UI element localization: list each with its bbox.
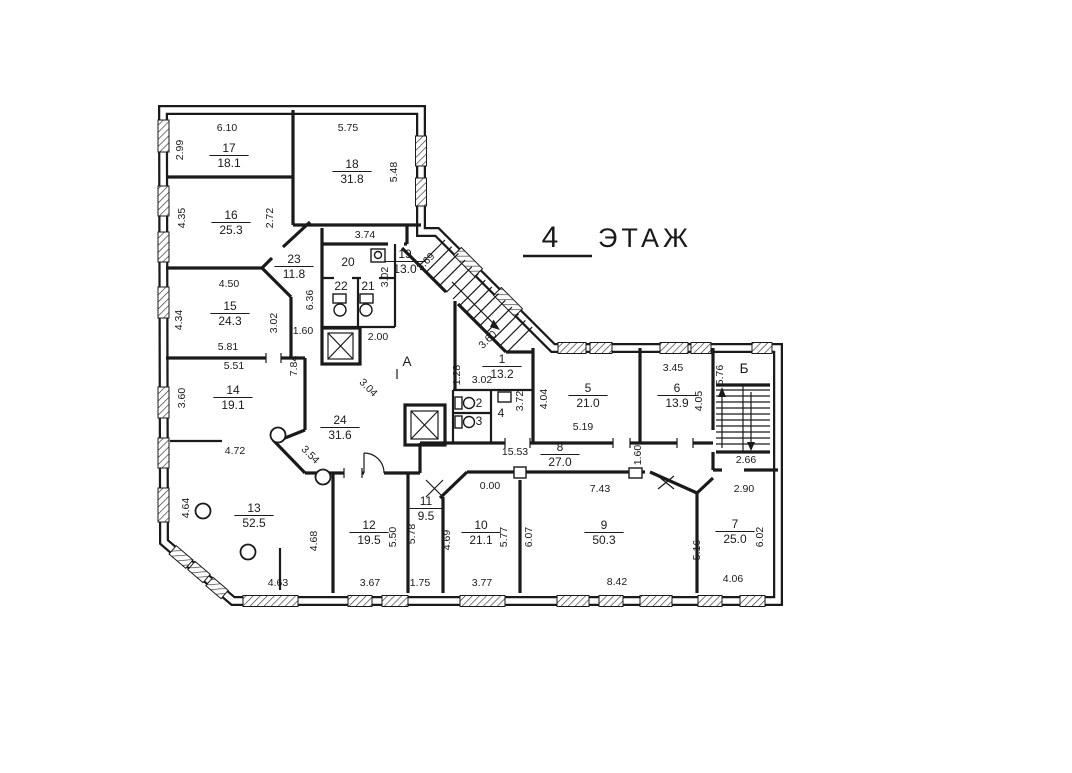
dimension-label: 0.00 <box>480 480 501 492</box>
room-label: 21.1 <box>469 533 493 547</box>
dimension-label: 1.60 <box>293 325 314 337</box>
room-label: 25.0 <box>723 532 747 546</box>
dimension-label: 4.72 <box>225 445 246 457</box>
room-label: 11 <box>420 494 433 508</box>
dimension-label: 2.00 <box>368 331 389 343</box>
room-label: 27.0 <box>548 455 572 469</box>
room-label: 11.8 <box>283 267 306 281</box>
room-label: 3 <box>476 414 483 428</box>
elevator-shaft-1 <box>322 328 360 364</box>
room-label: 15 <box>223 299 237 313</box>
dimension-label: 6.02 <box>754 527 766 548</box>
dimension-label: 3.74 <box>355 229 376 241</box>
room-label: 8 <box>557 440 564 454</box>
dimension-label: 3.54 <box>299 443 322 466</box>
dimension-label: 3.67 <box>360 577 381 589</box>
room-label: 6 <box>674 381 681 395</box>
dimension-label: 2.72 <box>264 208 276 229</box>
room-label: 52.5 <box>242 516 266 530</box>
room-label: 24 <box>333 413 347 427</box>
dimension-label: 5.78 <box>406 524 418 545</box>
dimension-label: 3.60 <box>176 388 188 409</box>
room-label: 22 <box>334 279 348 293</box>
room-label: 18 <box>345 157 359 171</box>
stairs-b <box>716 385 770 452</box>
room-label: 7 <box>732 517 739 531</box>
room-label: Б <box>740 361 749 376</box>
room-label: 21 <box>361 279 375 293</box>
dimension-label: 7.84 <box>288 356 300 377</box>
dimension-label: 6.07 <box>523 527 535 548</box>
floor-plan-page: 1718.11625.31831.81524.31419.12311.81913… <box>0 0 1072 768</box>
room-label: 5 <box>585 381 592 395</box>
dimension-label: 6.36 <box>304 290 316 311</box>
dimension-label: 4.35 <box>176 208 188 229</box>
dimension-label: 4.68 <box>308 531 320 552</box>
dimension-label: 4.69 <box>441 530 453 551</box>
dimension-label: 3.72 <box>514 391 526 412</box>
dimension-label: 4.50 <box>219 278 240 290</box>
room-label: 1 <box>499 352 506 366</box>
room-label: А <box>402 354 411 369</box>
dimension-label: 3.02 <box>472 374 493 386</box>
floor-title: 4 ЭТАЖ <box>523 221 692 256</box>
room-label: 23 <box>287 252 301 266</box>
dimension-label: 5.50 <box>387 527 399 548</box>
dimension-label: 2.99 <box>174 140 186 161</box>
dimension-label: 4.05 <box>693 391 705 412</box>
room-label: 9.5 <box>418 509 435 523</box>
room-label: 25.3 <box>219 223 243 237</box>
room-label: 16 <box>224 208 238 222</box>
dimension-label: 1.28 <box>451 365 463 386</box>
room-label: 4 <box>498 406 505 420</box>
room-label: 13.9 <box>665 396 689 410</box>
floor-title-number: 4 <box>542 221 559 254</box>
dimension-label: 2.66 <box>736 454 757 466</box>
dimension-label: 3.45 <box>663 362 684 374</box>
dimension-label: 3.02 <box>268 313 280 334</box>
dimension-label: 1.75 <box>410 577 431 589</box>
floor-plan-drawing: 1718.11625.31831.81524.31419.12311.81913… <box>0 0 1072 768</box>
dimension-label: 4.63 <box>268 577 289 589</box>
dimension-label: 3.69 <box>414 250 437 273</box>
dimension-label: 5.75 <box>338 122 359 134</box>
dimension-label: 3.04 <box>357 376 380 399</box>
dimension-label: 4.34 <box>173 310 185 331</box>
dimension-label: 5.48 <box>388 162 400 183</box>
dimension-label: 5.76 <box>714 365 726 386</box>
dimension-label: 3.02 <box>379 267 391 288</box>
room-label: 18.1 <box>217 156 241 170</box>
room-label: 2 <box>476 396 483 410</box>
dimension-label: 5.19 <box>573 421 594 433</box>
floor-title-word: ЭТАЖ <box>598 223 692 253</box>
dimension-label: 5.51 <box>224 360 245 372</box>
room-label: 31.6 <box>328 428 352 442</box>
dimension-label: 3.77 <box>472 577 493 589</box>
dimension-label: 5.77 <box>498 527 510 548</box>
room-label: 19 <box>398 247 412 261</box>
dimension-label: 4.64 <box>180 498 192 519</box>
dimension-label: 4.04 <box>538 389 550 410</box>
room-label: 13.0 <box>393 262 417 276</box>
room-label: 50.3 <box>592 533 616 547</box>
room-label: 17 <box>222 141 236 155</box>
dimension-label: 7.43 <box>590 483 611 495</box>
dimension-label: 15.53 <box>502 446 528 458</box>
room-label: 13.2 <box>490 367 514 381</box>
dimension-label: 5.16 <box>691 540 703 561</box>
room-label: 10 <box>474 518 488 532</box>
dimension-label: 2.90 <box>734 483 755 495</box>
room-label: 31.8 <box>340 172 364 186</box>
room-label: 9 <box>601 518 608 532</box>
elevator-shaft-2 <box>405 405 445 445</box>
dimension-label: 8.42 <box>607 576 628 588</box>
room-label: 19.1 <box>221 398 245 412</box>
room-label: 24.3 <box>218 314 242 328</box>
dimension-label: 6.10 <box>217 122 238 134</box>
dimension-label: 5.81 <box>218 341 239 353</box>
room-label: 20 <box>341 255 355 269</box>
dimension-label: 4.06 <box>723 573 744 585</box>
room-label: 21.0 <box>576 396 600 410</box>
room-label: 12 <box>362 518 376 532</box>
room-label: 19.5 <box>357 533 381 547</box>
room-label: 14 <box>226 383 240 397</box>
dimension-label: 3.60 <box>476 328 499 351</box>
dimension-label: 1.60 <box>632 445 644 466</box>
room-label: 13 <box>247 501 261 515</box>
